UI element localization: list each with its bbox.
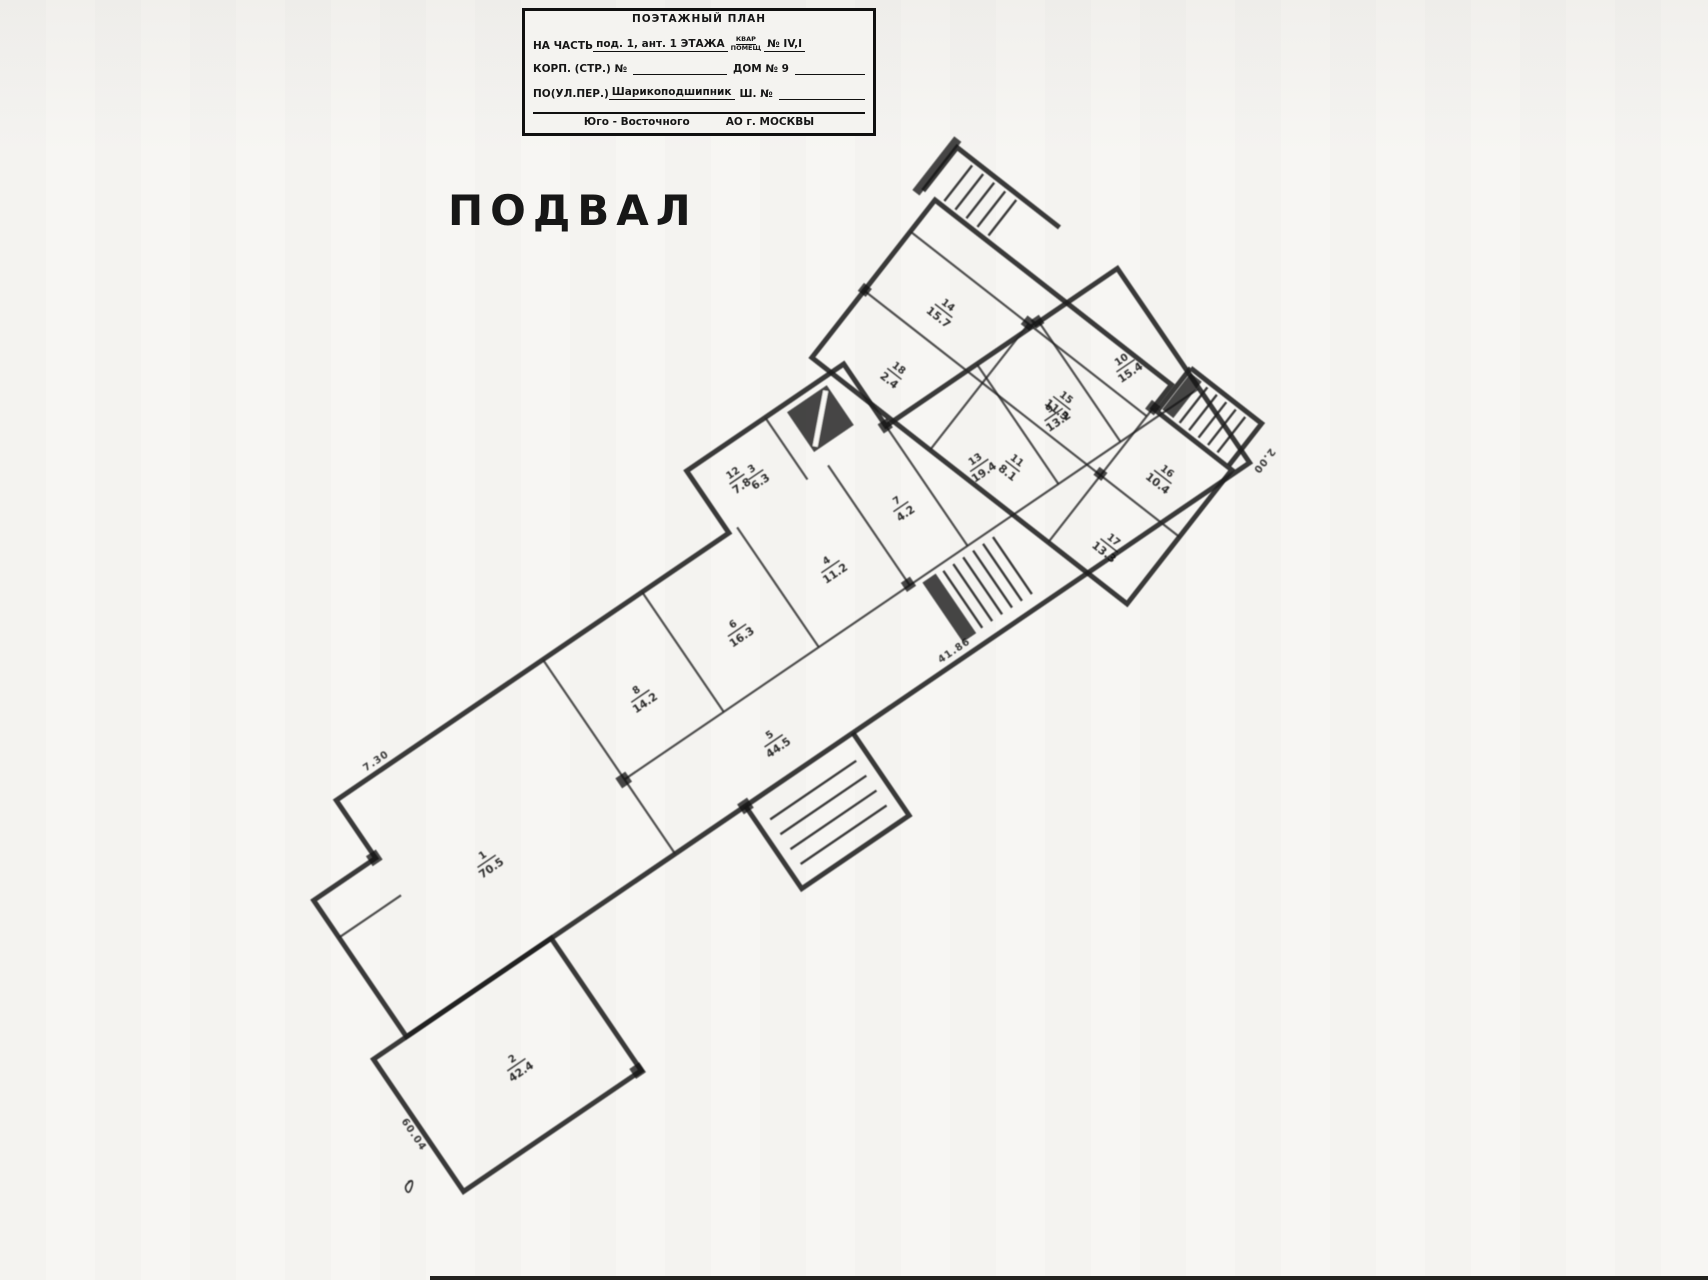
scanned-floorplan-page: { "title_block": { "title": "ПОЭТАЖНЫЙ П… <box>0 0 1708 1280</box>
room-label: 4 11.2 <box>812 549 850 587</box>
room-label: 7 4.2 <box>886 491 917 524</box>
room-label: 16 10.4 <box>1143 459 1181 497</box>
room-label: 14 15.7 <box>924 293 962 331</box>
upper-wing-group: 14 15.7 15 11.3 18 2.4 11 8.1 16 <box>793 136 1308 619</box>
room-label: 15 11.3 <box>1042 385 1080 423</box>
main-strip-group: 1 70.5 2 42.4 8 14.2 6 16.3 4 <box>187 206 1342 1203</box>
room-label: 1 70.5 <box>469 844 507 882</box>
room-label: 6 16.3 <box>719 613 757 651</box>
entry-porch-steps <box>944 166 1016 236</box>
corridor-stair-hatch <box>922 535 1032 642</box>
room-label: 10 15.4 <box>1108 348 1146 386</box>
dimension-label: 2.00 <box>1251 446 1277 475</box>
room-label: 5 44.5 <box>756 723 794 761</box>
room-label: 18 2.4 <box>877 358 909 391</box>
scanner-edge-artifact <box>430 1276 1708 1280</box>
room-label: 17 13.3 <box>1089 528 1127 566</box>
svg-text:12: 12 <box>761 531 779 548</box>
outer-walls-main-strip <box>232 206 1250 1036</box>
porch-thick-wall <box>912 136 961 195</box>
stray-pen-mark <box>406 1181 413 1193</box>
room-label: 8 14.2 <box>622 679 660 717</box>
room-label: 2 42.4 <box>498 1047 536 1085</box>
floorplan-drawing: 1 70.5 2 42.4 8 14.2 6 16.3 4 <box>0 0 1708 1280</box>
room-label: 11 8.1 <box>996 451 1028 484</box>
inner-walls-main-strip <box>232 206 1250 1036</box>
outer-walls-annex <box>373 938 641 1191</box>
